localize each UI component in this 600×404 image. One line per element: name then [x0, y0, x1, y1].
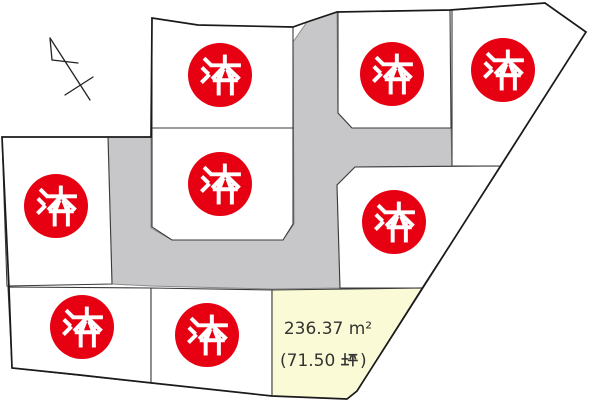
area-sqm-text: 236.37 m² — [284, 319, 372, 339]
sold-stamp-3 — [471, 38, 535, 102]
area-tsubo-text-suffix: ) — [360, 351, 367, 371]
area-tsubo-text-prefix: (71.50 — [280, 351, 335, 371]
sold-stamp-2 — [360, 42, 424, 106]
plot-map-canvas: 236.37 m² (71.50 ) — [0, 0, 600, 404]
sold-stamp-7 — [50, 295, 114, 359]
plot-map-page: 236.37 m² (71.50 ) — [0, 0, 600, 404]
available-lot — [272, 288, 422, 399]
sold-stamp-1 — [188, 43, 252, 107]
sold-stamp-5 — [188, 152, 252, 216]
sold-stamp-4 — [24, 174, 88, 238]
north-arrow-icon — [50, 38, 93, 100]
sold-stamp-6 — [362, 190, 426, 254]
sold-stamp-8 — [175, 303, 239, 367]
